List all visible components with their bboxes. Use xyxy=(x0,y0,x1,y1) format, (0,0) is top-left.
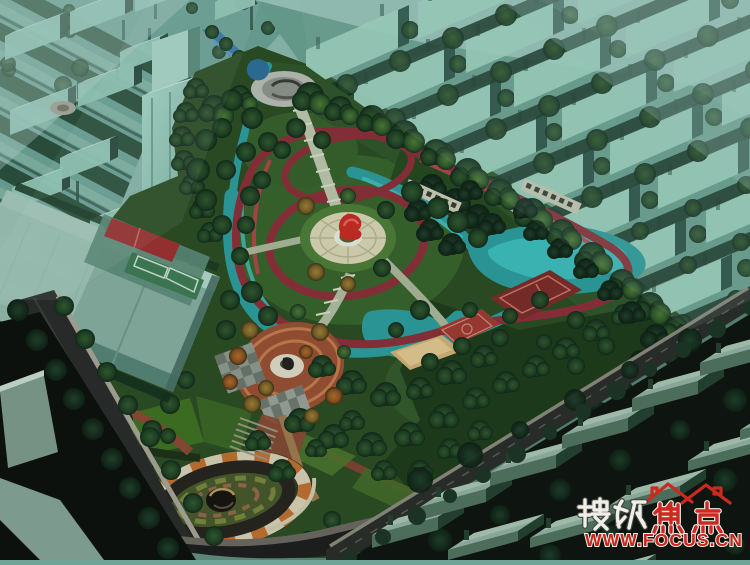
svg-text:WWW.FOCUS.CN: WWW.FOCUS.CN xyxy=(585,530,743,550)
